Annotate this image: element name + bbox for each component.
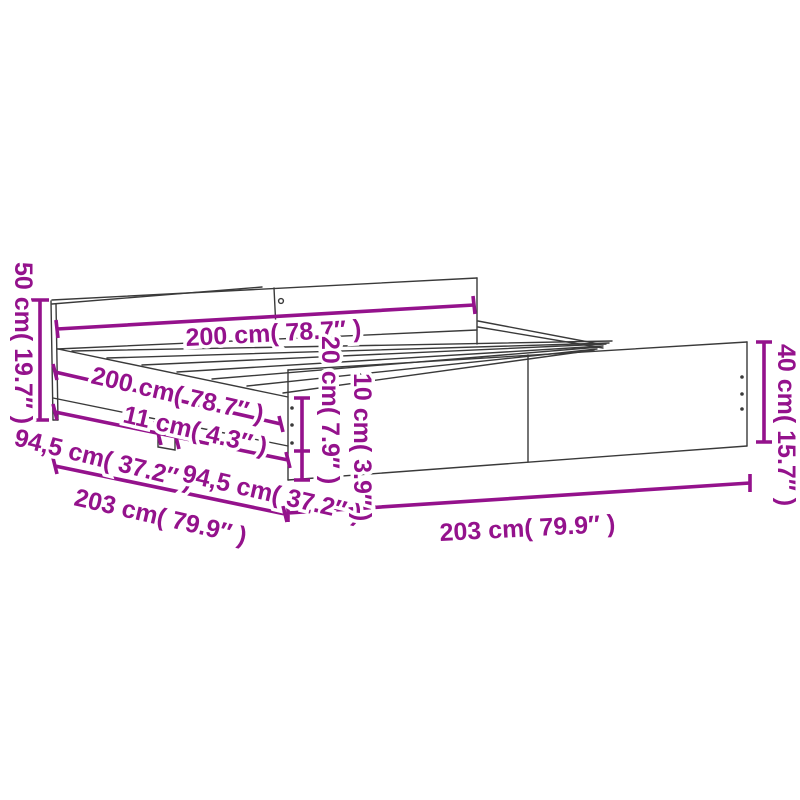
dimension-annotations: 50 cm( 19.7″ ) 200 cm( 78.7″ ) 200 cm( 7…	[9, 262, 800, 550]
headboard-left-leg-outer-edge	[51, 301, 53, 420]
headboard-top-face-edge	[52, 287, 262, 304]
headboard-top-edge	[52, 278, 477, 300]
far-rail-top-edge	[478, 321, 599, 344]
dim-ground-clearance-label: 10 cm( 3.9″ )	[348, 373, 376, 521]
screw-hole	[290, 441, 294, 445]
dim-front-overall-label: 203 cm( 79.9″ )	[439, 510, 616, 547]
dim-footboard-height-label: 40 cm( 15.7″ )	[772, 344, 800, 506]
dim-rail-height-label: 20 cm( 7.9″ )	[316, 336, 344, 484]
screw-hole	[290, 406, 294, 410]
bed-frame-dimension-diagram: 50 cm( 19.7″ ) 200 cm( 78.7″ ) 200 cm( 7…	[0, 0, 800, 800]
screw-hole	[740, 407, 744, 411]
screw-hole	[740, 392, 744, 396]
dim-footboard-height-line	[756, 342, 772, 442]
headboard-hole	[279, 299, 284, 304]
dim-rail-height-and-clearance-line	[294, 398, 310, 480]
diagram-canvas: 50 cm( 19.7″ ) 200 cm( 78.7″ ) 200 cm( 7…	[0, 0, 800, 800]
dim-headboard-height-label: 50 cm( 19.7″ )	[9, 262, 37, 424]
screw-hole	[290, 423, 294, 427]
screw-hole	[740, 375, 744, 379]
